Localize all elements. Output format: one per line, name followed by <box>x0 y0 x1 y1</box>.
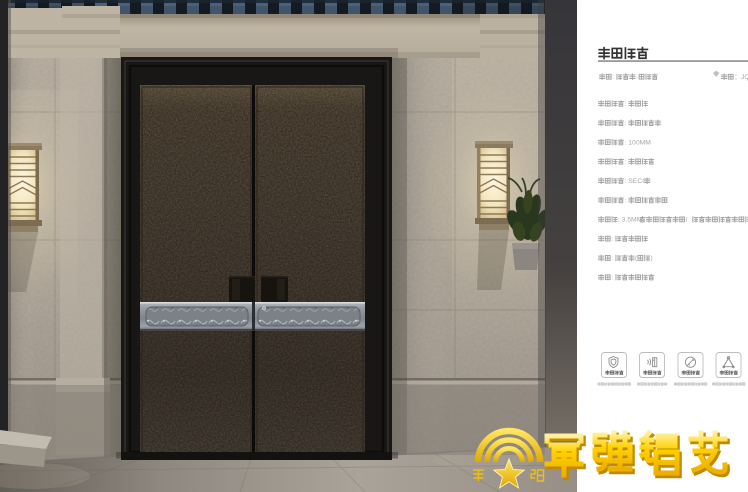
svg-text:): ) <box>650 255 652 262</box>
svg-text:: SECC: : SECC <box>625 178 648 185</box>
svg-text:·: · <box>636 74 638 81</box>
svg-text::: : <box>612 74 614 81</box>
svg-text:: 3.5MM: : 3.5MM <box>618 217 643 224</box>
svg-text::: : <box>625 101 627 108</box>
svg-text::: : <box>625 120 627 127</box>
svg-text::: : <box>611 275 613 282</box>
svg-text::: : <box>625 197 627 204</box>
svg-text::: : <box>625 159 627 166</box>
svg-text:: 100MM: : 100MM <box>625 139 652 146</box>
svg-text::: : <box>611 236 613 243</box>
svg-text:/: / <box>686 217 688 224</box>
svg-text::: : <box>611 255 613 262</box>
svg-text:：JQ-8: ：JQ-8 <box>734 74 748 81</box>
